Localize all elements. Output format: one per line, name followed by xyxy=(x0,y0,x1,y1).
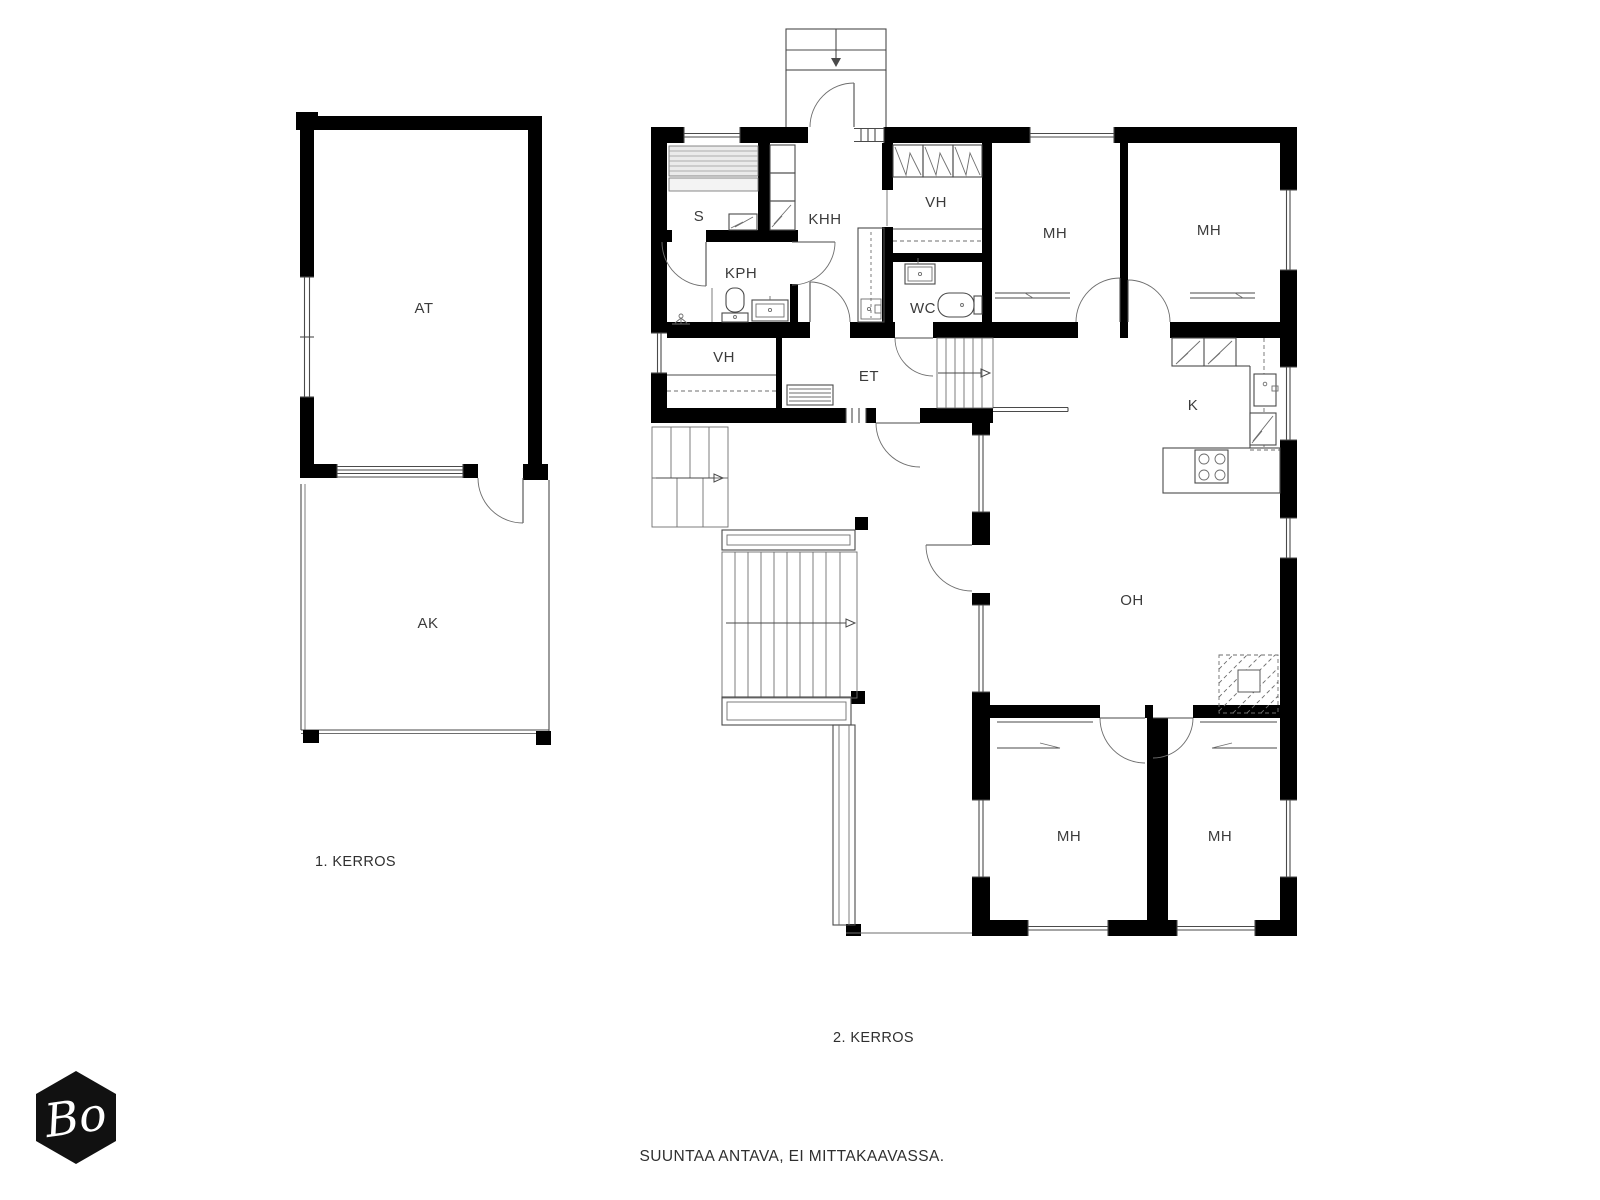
room-label-mh-ne-right: MH xyxy=(1197,222,1221,239)
room-label-wc: WC xyxy=(910,300,936,317)
entrance-door-opening xyxy=(808,127,854,143)
sauna-stove xyxy=(729,214,757,230)
dishwasher-icon xyxy=(1250,413,1276,445)
stove-icon xyxy=(1195,450,1228,483)
room-label-ak: AK xyxy=(417,615,438,632)
at-ak-door xyxy=(478,478,523,523)
mh-s-left-door xyxy=(1100,718,1145,763)
room-label-at: AT xyxy=(414,300,433,317)
room-label-kph: KPH xyxy=(725,265,757,282)
window-oh-east xyxy=(1280,518,1297,558)
window-entrance-sidelight xyxy=(854,127,884,143)
logo-text: Bo xyxy=(40,1086,109,1148)
floor-plan-canvas: AT AK xyxy=(0,0,1600,1200)
vh-mid-shelves xyxy=(667,375,776,391)
kitchen-fixtures xyxy=(1163,338,1280,493)
stairs-indoor xyxy=(652,427,728,527)
room-label-vh-top: VH xyxy=(925,194,947,211)
room-at-walls xyxy=(296,112,548,480)
window-mh-s-left-west xyxy=(972,800,990,877)
room-label-et: ET xyxy=(859,368,879,385)
entrance-door xyxy=(810,83,854,127)
kph-fixtures xyxy=(672,288,788,324)
entrance-arrow-icon xyxy=(831,58,841,67)
wc-toilet-icon xyxy=(938,293,982,317)
floor1-plan: AT AK xyxy=(296,112,551,745)
entrance-porch xyxy=(786,29,886,127)
vh-top-wardrobes xyxy=(893,145,982,241)
toilet-icon xyxy=(722,288,748,322)
room-label-s: S xyxy=(694,208,705,225)
deck-door xyxy=(876,423,920,467)
room-label-oh: OH xyxy=(1120,592,1144,609)
room-label-mh-s-right: MH xyxy=(1208,828,1232,845)
window-oh-west-2 xyxy=(972,605,990,692)
stairs-deck xyxy=(722,552,857,698)
window-mh-ne-north xyxy=(1030,127,1114,143)
terrace-railing xyxy=(722,530,972,933)
bedroom-wardrobes xyxy=(995,293,1277,748)
at-ak-window-band xyxy=(337,464,463,478)
shower-icon xyxy=(672,288,712,324)
window-vh-mid-west xyxy=(651,333,667,373)
brand-logo: Bo xyxy=(36,1071,116,1164)
khh-counter xyxy=(858,228,884,322)
mh-ne-left-door xyxy=(1076,278,1120,322)
window-corridor-small xyxy=(846,408,866,423)
floor-plan-page: AT AK xyxy=(0,0,1600,1200)
sink-icon xyxy=(752,296,788,321)
utility-cabinets xyxy=(770,145,795,230)
floor2-plan: S KHH VH MH MH KPH WC VH ET K OH MH MH xyxy=(651,29,1297,936)
mh-ne-right-door xyxy=(1128,280,1170,322)
khh-et-door xyxy=(810,282,850,322)
et-mat xyxy=(787,385,833,405)
room-label-k: K xyxy=(1188,397,1199,414)
fireplace xyxy=(1219,655,1278,713)
window-mh-s-right-east xyxy=(1280,800,1297,877)
wc-et-door xyxy=(895,338,933,376)
room-label-mh-ne-left: MH xyxy=(1043,225,1067,242)
kitchen-sink-icon xyxy=(1254,374,1278,406)
sauna-benches xyxy=(669,146,758,191)
room-label-vh-mid: VH xyxy=(713,349,735,366)
kph-khh-door xyxy=(792,242,835,285)
oh-terrace-door xyxy=(926,545,972,591)
disclaimer-text: SUUNTAA ANTAVA, EI MITTAKAAVASSA. xyxy=(640,1148,945,1165)
window-oh-west-1 xyxy=(972,435,990,512)
room-label-khh: KHH xyxy=(808,211,841,228)
window-sauna-north xyxy=(684,127,740,143)
stairs-et xyxy=(937,338,993,408)
kitchen-island xyxy=(1163,448,1280,493)
stairs-deck-arrow-icon xyxy=(846,619,855,627)
floor1-caption: 1. KERROS xyxy=(315,854,396,870)
at-window xyxy=(300,277,314,397)
room-label-mh-s-left: MH xyxy=(1057,828,1081,845)
window-mh-s-left-south xyxy=(1028,920,1108,936)
window-mh-ne-right-east xyxy=(1280,190,1297,270)
sauna-kph-door xyxy=(662,242,706,286)
kitchen-stair-guard xyxy=(993,408,1068,412)
floor2-caption: 2. KERROS xyxy=(833,1030,914,1046)
window-kitchen-east xyxy=(1280,367,1297,440)
window-mh-s-right-south xyxy=(1177,920,1255,936)
room-ak-structure xyxy=(301,480,551,745)
